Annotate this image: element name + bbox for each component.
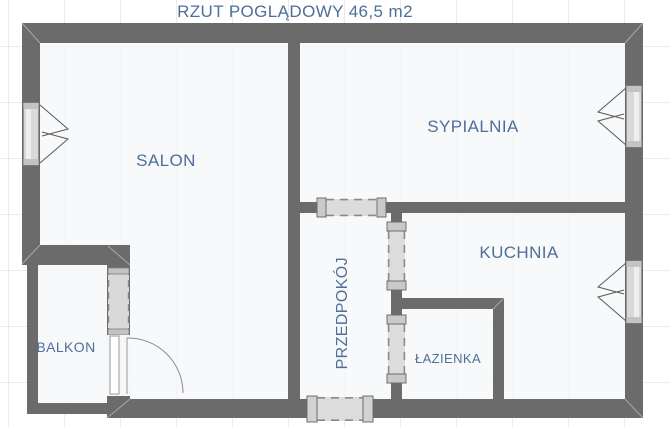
label-salon: SALON: [96, 151, 236, 171]
wall-right: [625, 23, 643, 418]
balcony-floor: [38, 265, 107, 403]
wall-lazienka-top: [402, 298, 504, 309]
entrance-door-icon: [307, 396, 373, 422]
page-title: RZUT POGLĄDOWY 46,5 m2: [145, 2, 445, 22]
floor-plan-page: RZUT POGLĄDOWY 46,5 m2 SALON SYPIALNIA K…: [0, 0, 670, 427]
label-przedpokoj: PRZEDPOKÓJ: [334, 243, 352, 383]
label-kuchnia: KUCHNIA: [449, 243, 589, 263]
label-lazienka: ŁAZIENKA: [393, 352, 503, 367]
wall-top: [22, 23, 643, 43]
kuchnia-door-icon: [387, 222, 406, 290]
label-balkon: BALKON: [11, 339, 121, 355]
label-sypialnia: SYPIALNIA: [403, 117, 543, 137]
wall-bottom: [107, 399, 643, 418]
sypialnia-door-icon: [317, 198, 386, 217]
lazienka-door-icon: [387, 315, 406, 383]
balcony-rail-bottom: [27, 403, 108, 414]
wall-salon-sypialnia: [288, 43, 300, 399]
wall-balcony-top: [22, 245, 130, 265]
balcony-window-icon: [108, 268, 129, 335]
